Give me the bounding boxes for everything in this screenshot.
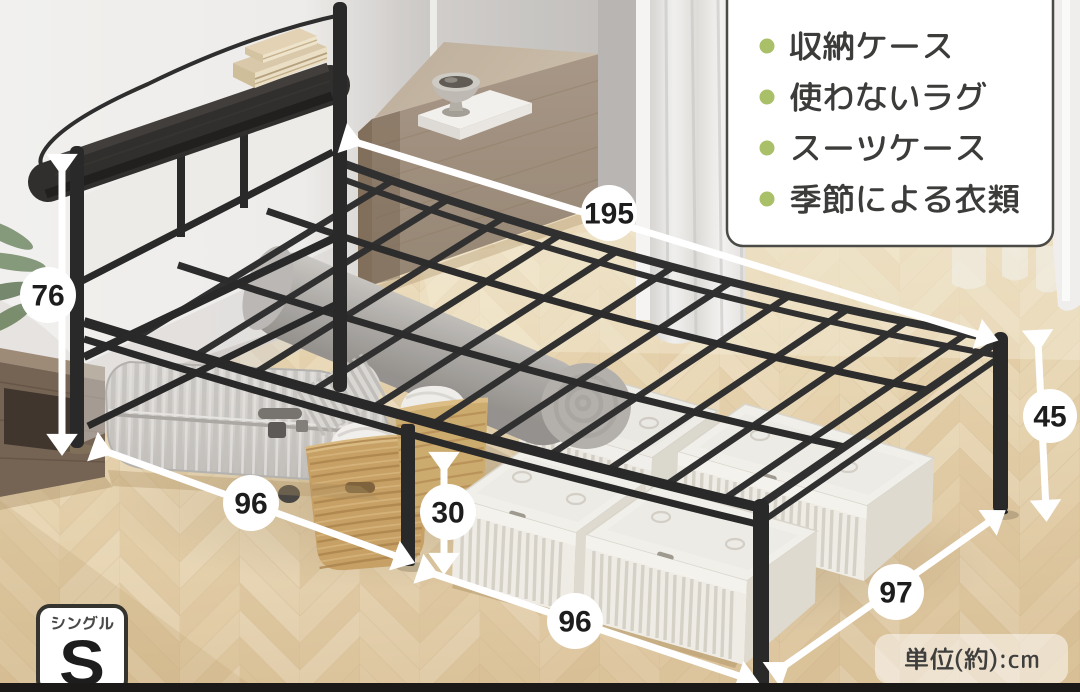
svg-text:96: 96: [234, 488, 267, 521]
svg-text:195: 195: [584, 198, 634, 231]
svg-text:30: 30: [431, 497, 464, 530]
svg-text:97: 97: [879, 577, 912, 610]
svg-text:S: S: [59, 627, 105, 692]
svg-text:96: 96: [558, 606, 591, 639]
svg-text:76: 76: [31, 280, 64, 313]
svg-text:45: 45: [1033, 401, 1066, 434]
